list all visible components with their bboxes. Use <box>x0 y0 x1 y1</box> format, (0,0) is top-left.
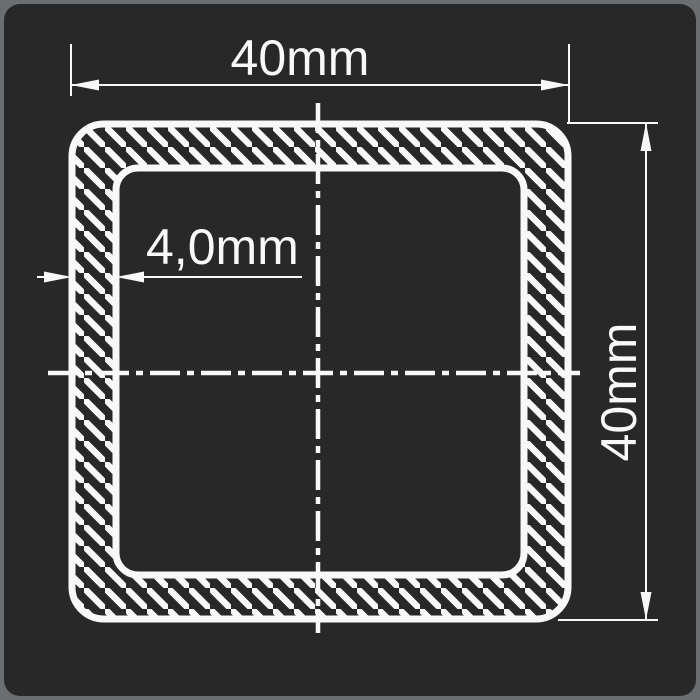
arrowhead-right-icon <box>541 80 569 91</box>
arrowhead-down-icon <box>641 592 652 620</box>
width-dimension-label: 40mm <box>231 30 370 86</box>
arrowhead-left-icon <box>71 80 99 91</box>
arrowhead-up-icon <box>641 123 652 151</box>
height-dimension-label: 40mm <box>591 323 647 462</box>
thickness-dimension-label: 4,0mm <box>146 219 299 275</box>
arrowhead-left-small-icon <box>116 272 144 283</box>
tube-cross-section-drawing: 40mm 40mm 4,0mm <box>0 0 700 700</box>
arrowhead-right-small-icon <box>44 272 72 283</box>
page-background: 40mm 40mm 4,0mm <box>0 0 700 700</box>
